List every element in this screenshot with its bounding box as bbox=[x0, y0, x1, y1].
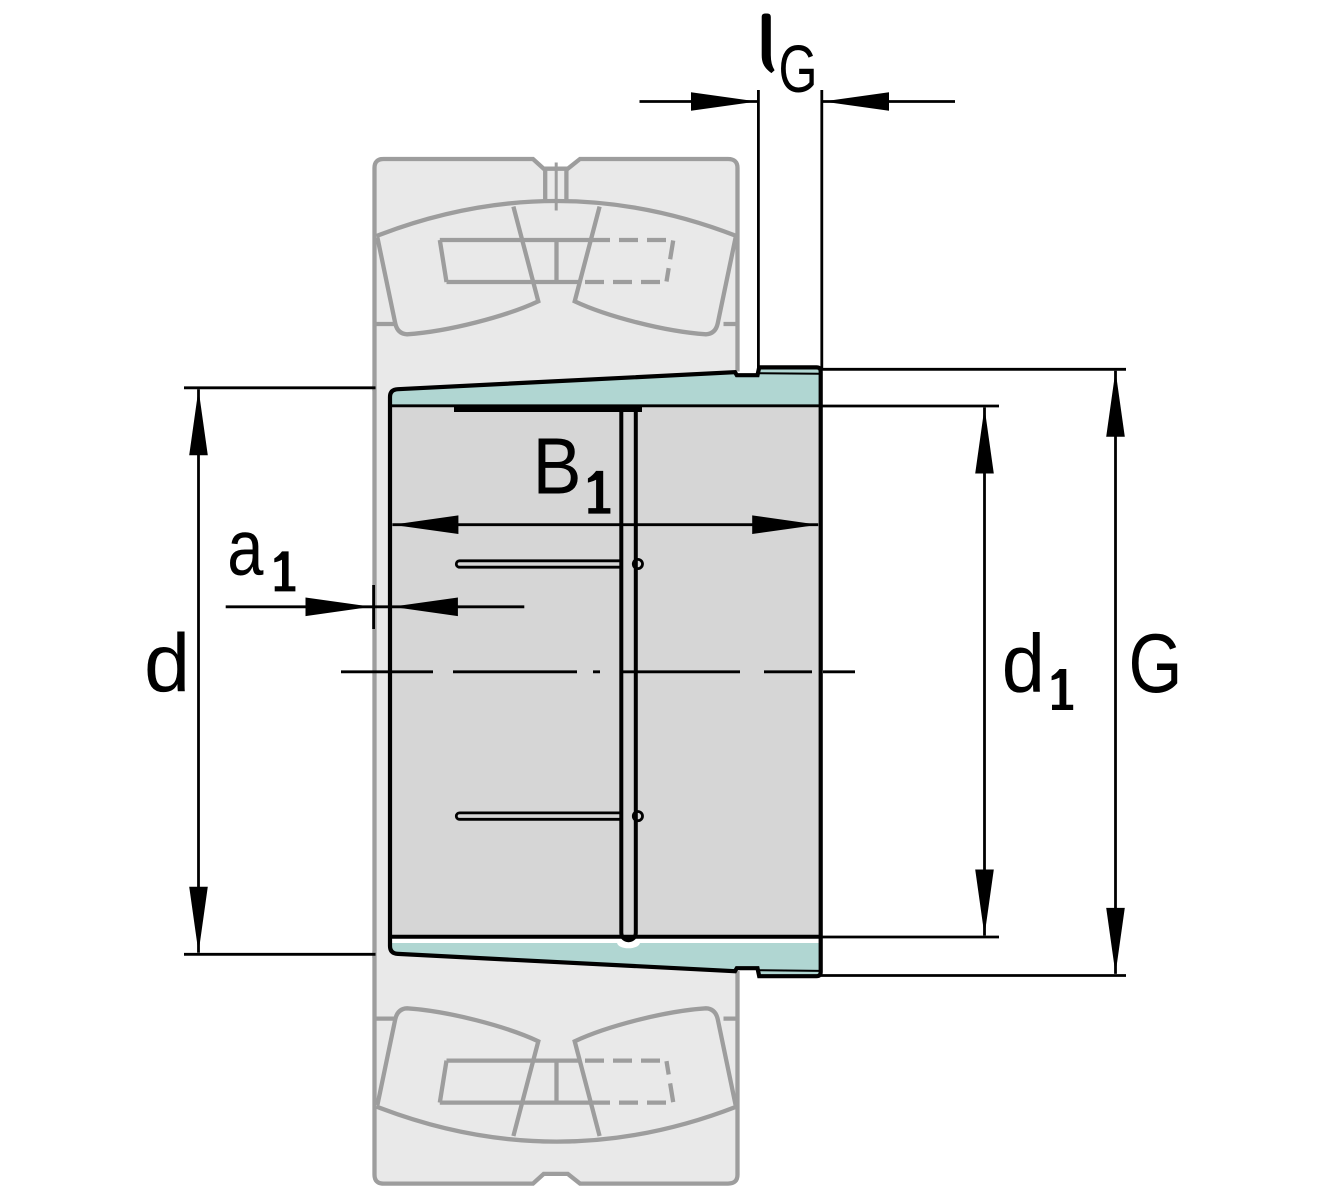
svg-text:d: d bbox=[144, 617, 190, 710]
svg-text:d: d bbox=[1002, 618, 1045, 710]
svg-text:G: G bbox=[779, 31, 818, 107]
svg-text:B: B bbox=[533, 423, 582, 511]
svg-text:a: a bbox=[227, 505, 264, 592]
svg-text:G: G bbox=[1129, 617, 1183, 711]
